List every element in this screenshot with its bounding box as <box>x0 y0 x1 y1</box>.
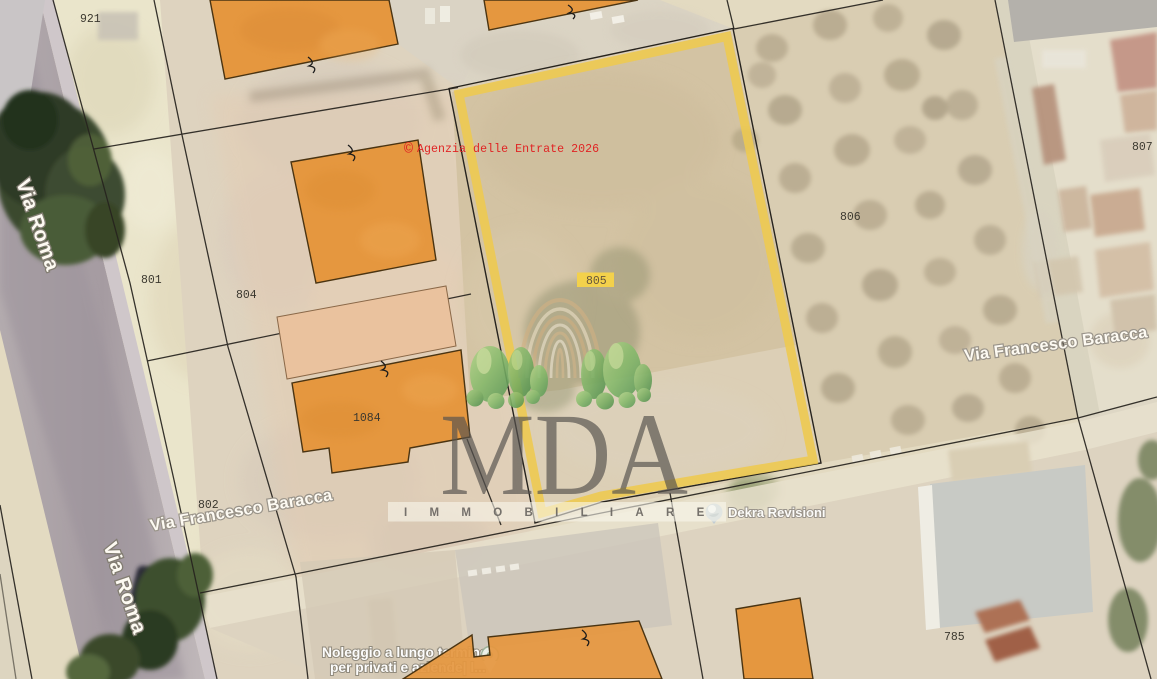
svg-text:MDA: MDA <box>440 389 688 520</box>
svg-text:801: 801 <box>141 274 162 287</box>
svg-text:1084: 1084 <box>353 412 381 425</box>
svg-text:Agenzia delle Entrate 2026: Agenzia delle Entrate 2026 <box>417 143 599 156</box>
svg-text:785: 785 <box>944 631 965 644</box>
svg-text:921: 921 <box>80 13 101 26</box>
svg-text:805: 805 <box>586 275 607 288</box>
svg-text:IMMOBILIARE: IMMOBILIARE <box>404 507 727 519</box>
svg-text:©: © <box>404 141 413 158</box>
svg-text:804: 804 <box>236 289 257 302</box>
svg-text:Dekra Revisioni: Dekra Revisioni <box>728 505 826 520</box>
svg-text:807: 807 <box>1132 141 1153 154</box>
svg-text:806: 806 <box>840 211 861 224</box>
